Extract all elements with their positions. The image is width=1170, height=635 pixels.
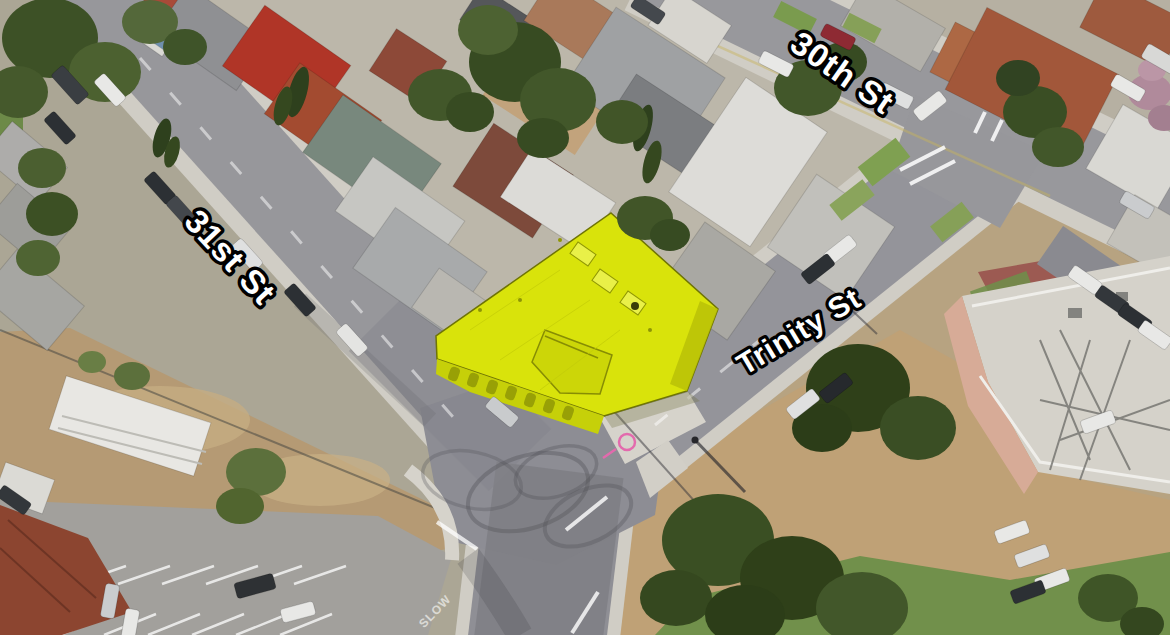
aerial-map-view[interactable]: SLOW [0, 0, 1170, 635]
aerial-scene: SLOW [0, 0, 1170, 635]
